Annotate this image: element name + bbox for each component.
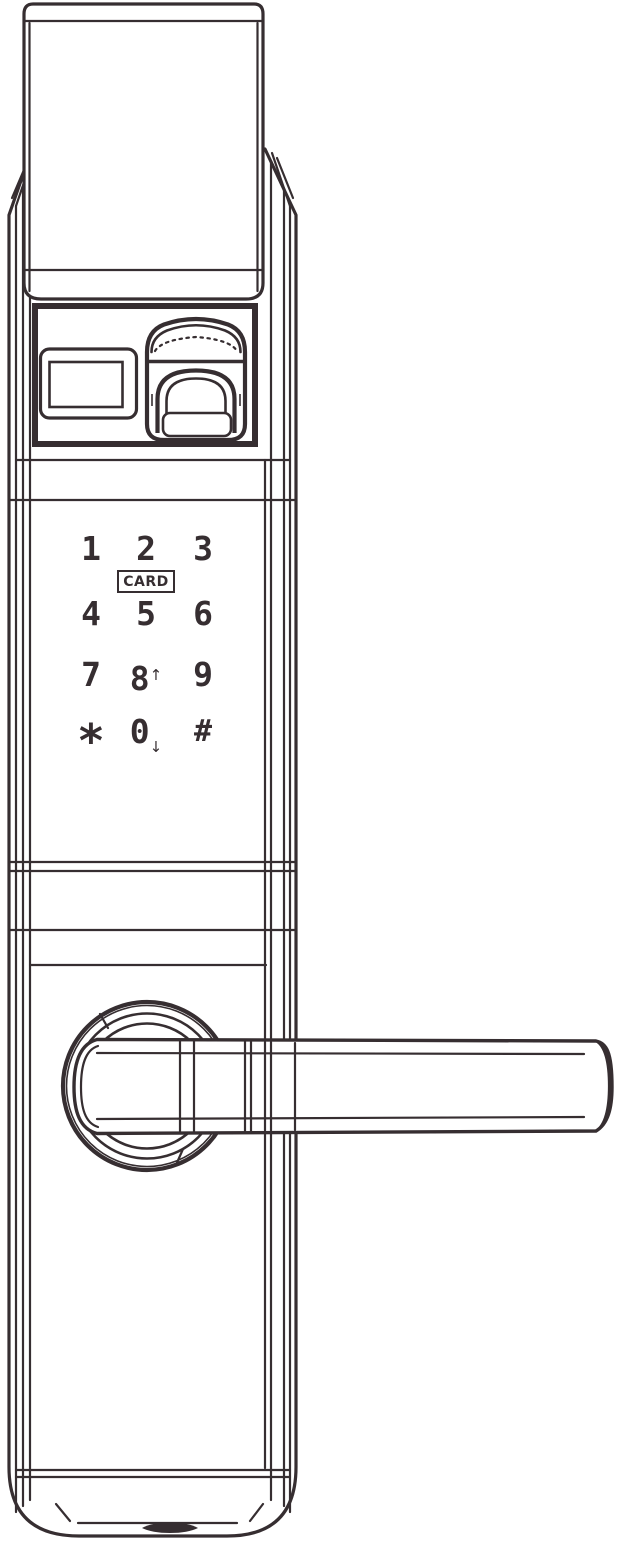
key-1-label: 1: [81, 529, 101, 568]
fingerprint-reader[interactable]: [147, 319, 245, 440]
arrow-down-icon: ↓: [150, 738, 163, 756]
key-3-label: 3: [193, 529, 213, 568]
key-0[interactable]: 0↓: [130, 711, 162, 753]
key-hash-label: #: [194, 714, 212, 749]
key-6[interactable]: 6: [193, 593, 213, 635]
door-handle[interactable]: [63, 1002, 612, 1170]
key-5[interactable]: 5: [136, 593, 156, 635]
card-label: CARD: [123, 574, 169, 590]
card-zone[interactable]: CARD: [117, 570, 175, 593]
key-8[interactable]: 8↑: [130, 654, 162, 696]
handle-lever[interactable]: [74, 1040, 612, 1134]
key-9[interactable]: 9: [193, 654, 213, 696]
key-2-label: 2: [136, 529, 156, 568]
key-7-label: 7: [81, 655, 101, 694]
key-star[interactable]: *: [77, 711, 105, 753]
battery-cover: [24, 4, 263, 299]
lock-outline-drawing: [0, 0, 617, 1541]
display-screen: [41, 349, 137, 418]
key-5-label: 5: [136, 594, 156, 633]
lock-drawing-canvas: 1 2 3 CARD 4 5 6 7 8↑ 9 * 0↓ #: [0, 0, 617, 1541]
key-3[interactable]: 3: [193, 528, 213, 570]
key-8-label: 8: [130, 659, 150, 698]
key-7[interactable]: 7: [81, 654, 101, 696]
key-1[interactable]: 1: [81, 528, 101, 570]
key-0-label: 0: [130, 712, 150, 751]
key-9-label: 9: [193, 655, 213, 694]
key-4[interactable]: 4: [81, 593, 101, 635]
key-4-label: 4: [81, 594, 101, 633]
key-hash[interactable]: #: [194, 711, 212, 753]
key-2[interactable]: 2: [136, 528, 156, 570]
sensor-panel: [35, 306, 255, 444]
key-star-label: *: [77, 720, 105, 762]
arrow-up-icon: ↑: [150, 666, 163, 684]
key-6-label: 6: [193, 594, 213, 633]
